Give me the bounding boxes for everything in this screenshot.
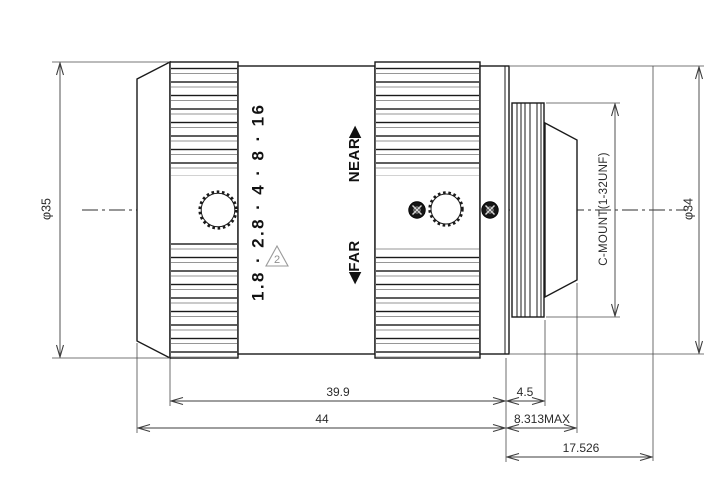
set-screw-icon bbox=[409, 202, 426, 219]
revision-number: 2 bbox=[274, 254, 280, 266]
dim-text-flange-distance: 17.526 bbox=[563, 441, 600, 455]
dim-text-rear-diameter: φ34 bbox=[681, 198, 695, 220]
dim-text-front-diameter: φ35 bbox=[39, 198, 53, 220]
dim-rear-protrusion: 8.313MAX bbox=[507, 412, 576, 428]
mount-spec-text: C-MOUNT(1-32UNF) bbox=[598, 152, 610, 265]
knurl-texture bbox=[171, 243, 237, 357]
dim-text-rear-protrusion: 8.313MAX bbox=[514, 412, 570, 426]
knurl-texture bbox=[376, 63, 479, 176]
far-label: ◀FAR bbox=[346, 240, 363, 285]
rear-lens-element bbox=[545, 123, 577, 297]
front-bezel bbox=[137, 62, 170, 358]
knurl-texture bbox=[376, 245, 479, 357]
dim-text-overall-length: 44 bbox=[315, 412, 329, 426]
drawing-sheet: 1.8 · 2.8 · 4 · 8 · 16 NEAR▶ ◀FAR 2 φ35 … bbox=[0, 0, 728, 491]
dim-flange-distance: 17.526 bbox=[507, 441, 652, 457]
lens-technical-drawing: 1.8 · 2.8 · 4 · 8 · 16 NEAR▶ ◀FAR 2 φ35 … bbox=[0, 0, 728, 491]
dim-thread-length: 4.5 bbox=[507, 385, 544, 401]
lens-body bbox=[137, 62, 577, 358]
dim-overall-length: 44 bbox=[138, 412, 505, 428]
near-label: NEAR▶ bbox=[346, 125, 363, 183]
cmount-thread bbox=[512, 103, 544, 317]
dim-text-barrel-length: 39.9 bbox=[326, 385, 350, 399]
dim-barrel-length: 39.9 bbox=[171, 385, 505, 401]
dim-text-thread-length: 4.5 bbox=[517, 385, 534, 399]
set-screw-icon bbox=[482, 202, 499, 219]
knurl-texture bbox=[171, 63, 237, 176]
